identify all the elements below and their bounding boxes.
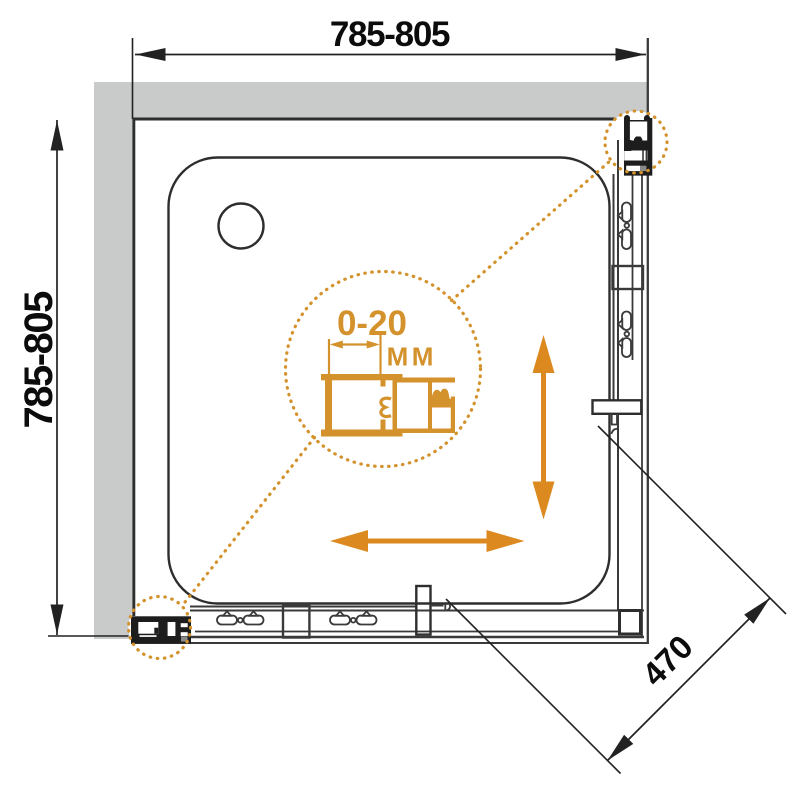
svg-text:785-805: 785-805 (330, 15, 450, 54)
svg-text:785-805: 785-805 (17, 291, 61, 429)
svg-text:MM: MM (387, 342, 437, 372)
svg-text:470: 470 (635, 628, 700, 693)
svg-text:0-20: 0-20 (337, 304, 407, 343)
